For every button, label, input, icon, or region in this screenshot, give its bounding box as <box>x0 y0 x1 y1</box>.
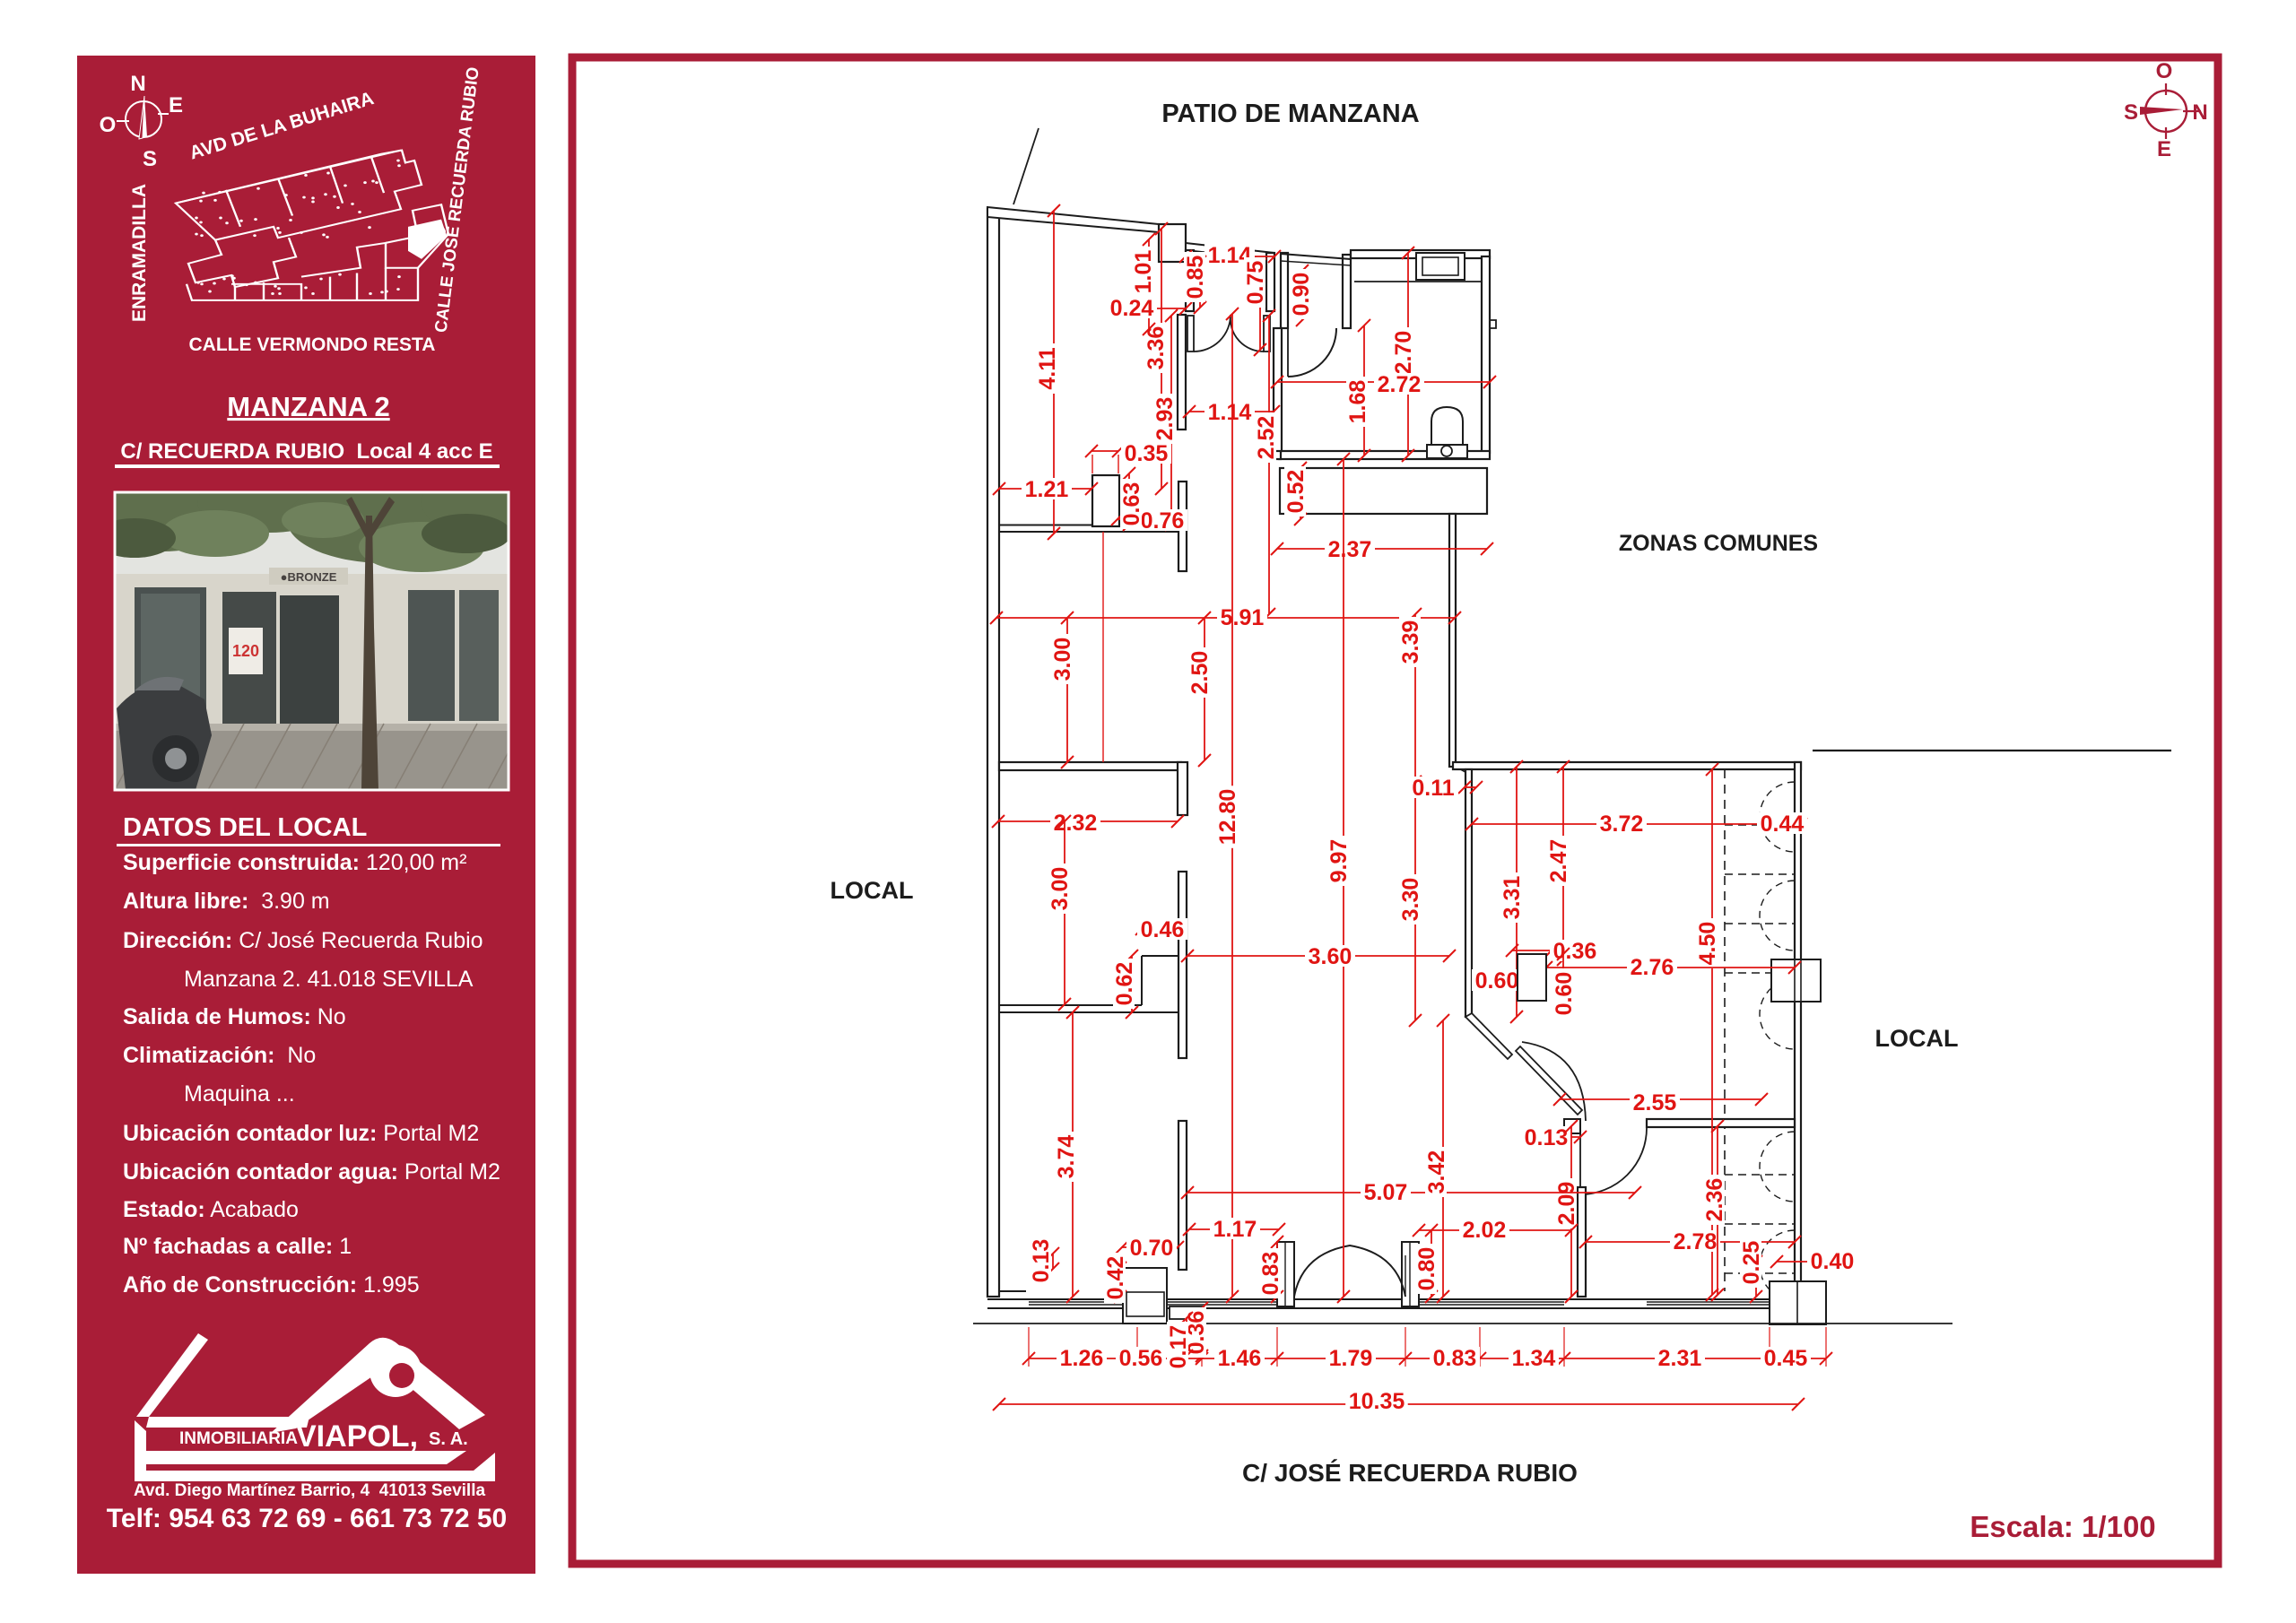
svg-text:9.97: 9.97 <box>1326 839 1352 883</box>
svg-text:O: O <box>2156 59 2173 83</box>
svg-text:1.21: 1.21 <box>1025 477 1069 502</box>
svg-text:Año de Construcción: 1.995: Año de Construcción: 1.995 <box>123 1272 420 1298</box>
svg-text:0.70: 0.70 <box>1130 1236 1174 1261</box>
svg-text:1.01: 1.01 <box>1131 250 1156 294</box>
svg-text:0.36: 0.36 <box>1553 939 1597 964</box>
svg-text:C/ JOSÉ RECUERDA RUBIO: C/ JOSÉ RECUERDA RUBIO <box>1242 1459 1578 1487</box>
svg-text:S: S <box>143 147 157 171</box>
svg-text:0.25: 0.25 <box>1739 1241 1764 1285</box>
svg-text:Avd. Diego Martínez Barrio, 4: Avd. Diego Martínez Barrio, 4 41013 Sevi… <box>134 1481 486 1500</box>
svg-text:3.36: 3.36 <box>1144 326 1169 370</box>
svg-text:0.60: 0.60 <box>1475 968 1519 994</box>
svg-text:1.68: 1.68 <box>1345 380 1370 424</box>
svg-text:VIAPOL,: VIAPOL, <box>296 1419 418 1454</box>
svg-text:5.07: 5.07 <box>1364 1180 1408 1205</box>
svg-text:DATOS DEL LOCAL: DATOS DEL LOCAL <box>123 813 367 842</box>
svg-text:2.72: 2.72 <box>1378 372 1422 397</box>
svg-text:CALLE VERMONDO RESTA: CALLE VERMONDO RESTA <box>189 334 436 355</box>
svg-text:N: N <box>2192 100 2207 125</box>
svg-text:Dirección: C/ José Recuerda Ru: Dirección: C/ José Recuerda Rubio <box>123 928 483 953</box>
svg-text:2.93: 2.93 <box>1152 397 1178 441</box>
svg-text:2.09: 2.09 <box>1554 1182 1579 1226</box>
svg-text:0.13: 0.13 <box>1029 1239 1054 1283</box>
svg-text:0.40: 0.40 <box>1811 1249 1855 1274</box>
svg-text:2.50: 2.50 <box>1187 651 1213 695</box>
svg-text:0.83: 0.83 <box>1258 1252 1283 1296</box>
svg-text:2.31: 2.31 <box>1658 1346 1702 1371</box>
svg-text:0.52: 0.52 <box>1283 470 1309 514</box>
svg-text:1.26: 1.26 <box>1060 1346 1104 1371</box>
svg-text:0.75: 0.75 <box>1243 261 1268 305</box>
svg-text:0.35: 0.35 <box>1125 441 1169 466</box>
svg-text:Manzana 2. 41.018 SEVILLA: Manzana 2. 41.018 SEVILLA <box>184 967 474 992</box>
svg-text:Superficie construida: 120,00: Superficie construida: 120,00 m² <box>123 850 466 875</box>
svg-text:Ubicación contador luz: Portal: Ubicación contador luz: Portal M2 <box>123 1121 479 1146</box>
svg-text:E: E <box>2157 137 2171 161</box>
svg-text:LOCAL: LOCAL <box>1875 1025 1959 1052</box>
svg-text:C/ RECUERDA RUBIO Local 4 acc: C/ RECUERDA RUBIO Local 4 acc E <box>120 439 492 464</box>
svg-text:0.62: 0.62 <box>1112 962 1137 1006</box>
svg-text:0.60: 0.60 <box>1552 972 1577 1016</box>
svg-text:10.35: 10.35 <box>1349 1389 1405 1414</box>
svg-text:Maquina ...: Maquina ... <box>184 1081 295 1107</box>
svg-text:3.00: 3.00 <box>1048 867 1073 911</box>
svg-text:Altura libre: 3.90 m: Altura libre: 3.90 m <box>123 889 330 914</box>
svg-text:1.79: 1.79 <box>1329 1346 1373 1371</box>
svg-text:2.78: 2.78 <box>1674 1229 1718 1254</box>
svg-text:0.11: 0.11 <box>1412 776 1454 801</box>
svg-text:2.70: 2.70 <box>1391 331 1416 375</box>
svg-text:ZONAS COMUNES: ZONAS COMUNES <box>1619 531 1818 556</box>
svg-text:ENRAMADILLA: ENRAMADILLA <box>129 184 150 322</box>
svg-text:Nº fachadas a calle: 1: Nº fachadas a calle: 1 <box>123 1234 352 1259</box>
svg-text:2.52: 2.52 <box>1254 416 1279 460</box>
svg-text:INMOBILIARIA: INMOBILIARIA <box>179 1429 298 1448</box>
svg-text:0.17: 0.17 <box>1166 1325 1191 1369</box>
svg-text:0.80: 0.80 <box>1414 1247 1439 1291</box>
svg-text:3.60: 3.60 <box>1309 944 1352 969</box>
svg-text:3.42: 3.42 <box>1424 1150 1449 1194</box>
svg-text:3.74: 3.74 <box>1054 1135 1079 1179</box>
svg-text:0.42: 0.42 <box>1103 1256 1128 1300</box>
svg-text:Ubicación contador agua: Porta: Ubicación contador agua: Portal M2 <box>123 1159 500 1185</box>
svg-text:2.32: 2.32 <box>1054 811 1098 836</box>
svg-text:Salida de Humos: No: Salida de Humos: No <box>123 1004 346 1029</box>
svg-text:Estado: Acabado: Estado: Acabado <box>123 1197 299 1222</box>
svg-text:0.24: 0.24 <box>1110 296 1154 321</box>
svg-text:0.83: 0.83 <box>1433 1346 1477 1371</box>
svg-text:3.00: 3.00 <box>1050 638 1075 681</box>
svg-text:●BRONZE: ●BRONZE <box>281 570 337 584</box>
svg-text:Climatización: No: Climatización: No <box>123 1043 316 1068</box>
svg-text:E: E <box>169 93 183 117</box>
svg-text:0.56: 0.56 <box>1119 1346 1163 1371</box>
svg-text:3.72: 3.72 <box>1600 811 1644 837</box>
svg-text:0.13: 0.13 <box>1525 1125 1569 1150</box>
svg-text:2.37: 2.37 <box>1328 537 1372 562</box>
svg-text:1.34: 1.34 <box>1512 1346 1556 1371</box>
svg-text:12.80: 12.80 <box>1215 789 1240 846</box>
svg-text:3.39: 3.39 <box>1398 621 1423 664</box>
svg-text:2.55: 2.55 <box>1633 1090 1677 1115</box>
svg-text:2.76: 2.76 <box>1631 955 1674 980</box>
svg-text:MANZANA 2: MANZANA 2 <box>227 391 389 422</box>
svg-text:O: O <box>100 113 117 137</box>
svg-text:0.44: 0.44 <box>1761 811 1805 837</box>
svg-text:LOCAL: LOCAL <box>831 877 914 904</box>
svg-text:Telf: 954 63 72 69 - 661 73 72: Telf: 954 63 72 69 - 661 73 72 50 <box>107 1504 507 1533</box>
svg-text:0.63: 0.63 <box>1119 482 1144 526</box>
svg-text:0.85: 0.85 <box>1183 256 1208 299</box>
svg-text:S. A.: S. A. <box>429 1429 468 1449</box>
svg-text:0.46: 0.46 <box>1141 917 1185 942</box>
svg-text:4.50: 4.50 <box>1695 922 1720 966</box>
svg-text:Escala: 1/100: Escala: 1/100 <box>1970 1510 2155 1543</box>
svg-text:0.45: 0.45 <box>1764 1346 1808 1371</box>
svg-text:3.31: 3.31 <box>1500 876 1525 920</box>
svg-text:2.02: 2.02 <box>1463 1218 1507 1243</box>
svg-text:1.14: 1.14 <box>1208 400 1252 425</box>
svg-text:5.91: 5.91 <box>1221 605 1265 630</box>
svg-text:N: N <box>130 72 145 96</box>
svg-text:1.17: 1.17 <box>1213 1217 1257 1242</box>
svg-text:3.30: 3.30 <box>1398 878 1423 922</box>
svg-text:2.47: 2.47 <box>1546 839 1571 883</box>
svg-text:PATIO DE MANZANA: PATIO DE MANZANA <box>1161 100 1419 128</box>
svg-text:S: S <box>2124 100 2138 125</box>
svg-text:1.46: 1.46 <box>1218 1346 1262 1371</box>
svg-text:120: 120 <box>232 642 259 660</box>
svg-text:2.36: 2.36 <box>1702 1178 1727 1222</box>
svg-text:0.76: 0.76 <box>1141 508 1185 534</box>
svg-text:4.11: 4.11 <box>1035 347 1060 389</box>
svg-text:0.90: 0.90 <box>1289 273 1314 317</box>
